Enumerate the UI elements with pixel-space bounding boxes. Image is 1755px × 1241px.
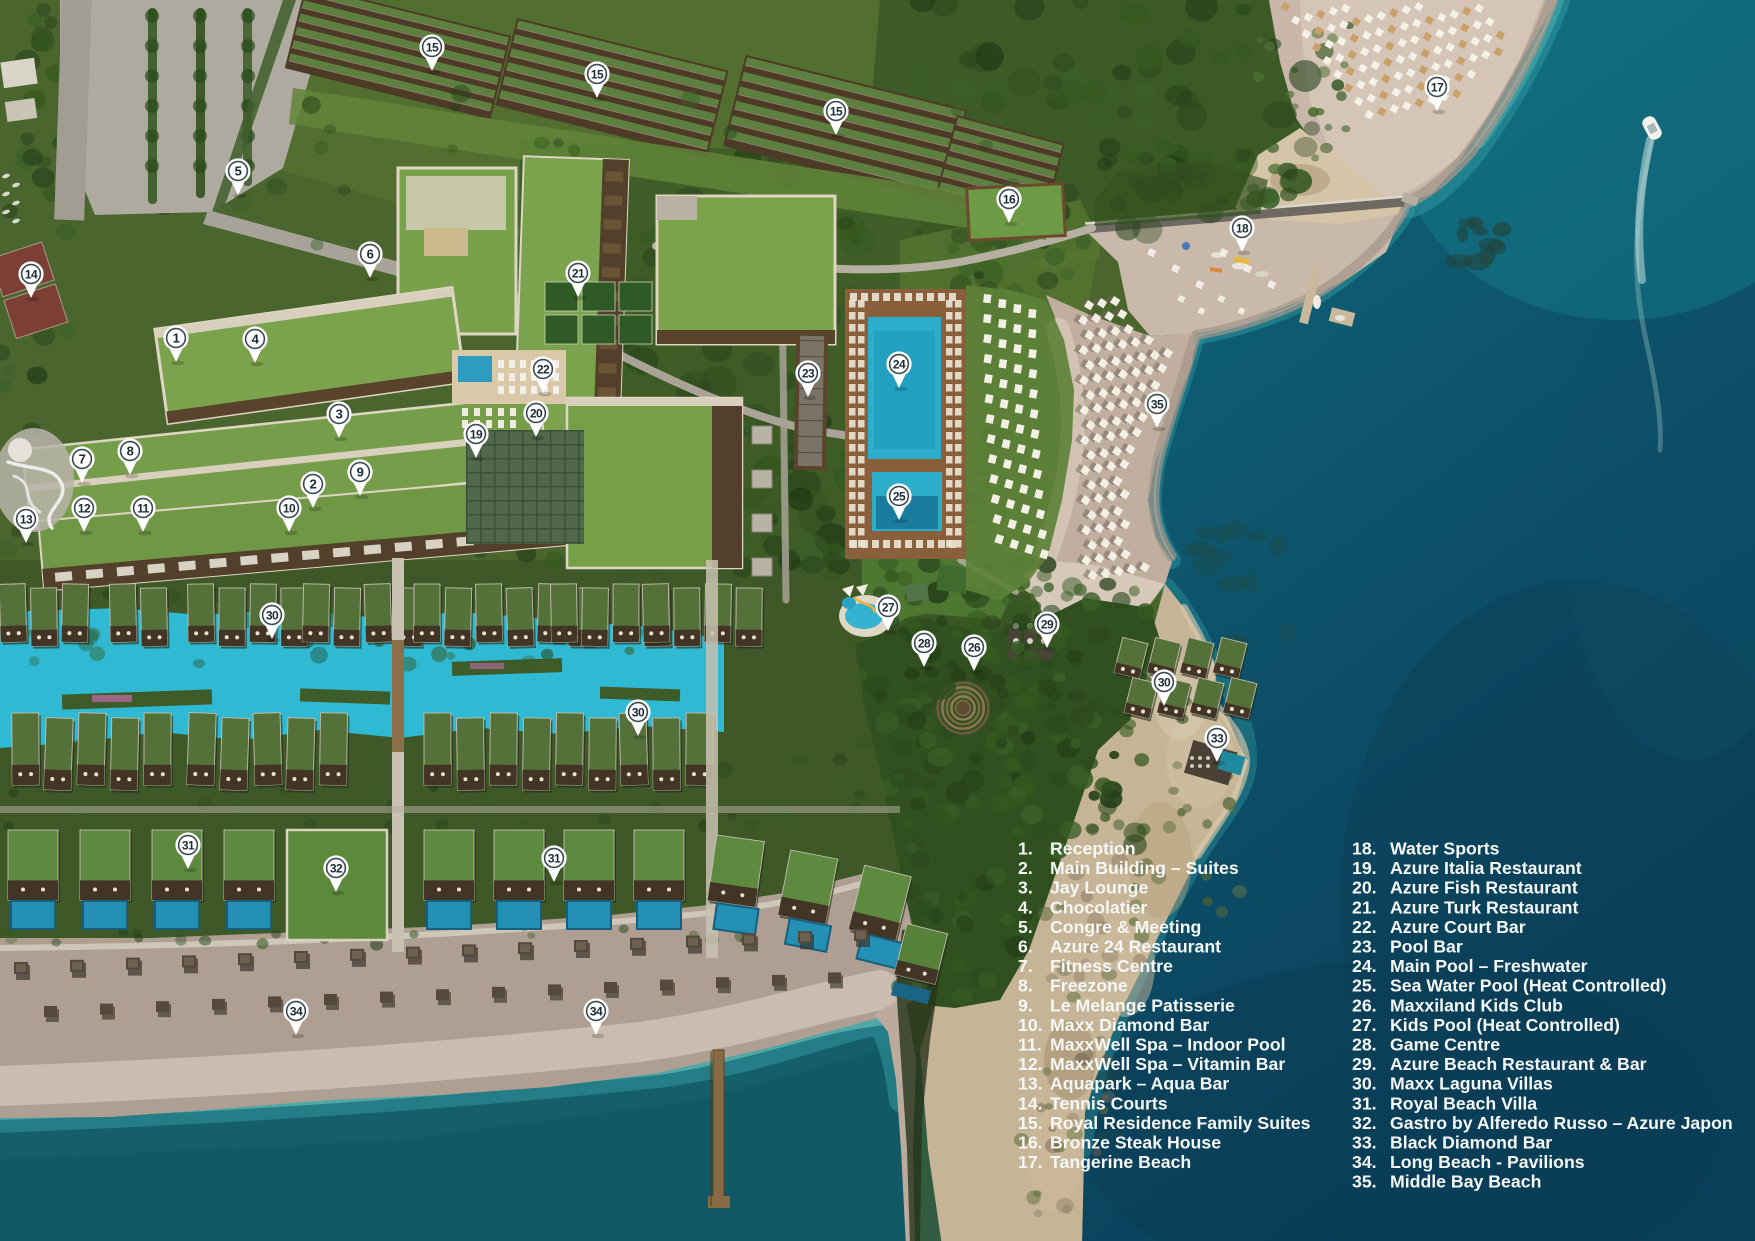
svg-text:3: 3 bbox=[336, 406, 343, 421]
svg-text:10: 10 bbox=[283, 501, 296, 515]
svg-text:30: 30 bbox=[1158, 675, 1171, 689]
svg-text:6: 6 bbox=[367, 246, 374, 261]
svg-text:15: 15 bbox=[830, 104, 843, 118]
svg-text:34: 34 bbox=[290, 1004, 303, 1018]
svg-text:8: 8 bbox=[127, 443, 134, 458]
svg-text:24: 24 bbox=[893, 357, 906, 371]
svg-text:13: 13 bbox=[20, 512, 33, 526]
svg-text:12: 12 bbox=[78, 501, 91, 515]
svg-text:35: 35 bbox=[1151, 397, 1164, 411]
svg-text:31: 31 bbox=[182, 838, 195, 852]
svg-text:21: 21 bbox=[572, 266, 585, 280]
svg-text:27: 27 bbox=[882, 600, 895, 614]
svg-text:31: 31 bbox=[548, 851, 561, 865]
svg-text:15: 15 bbox=[426, 40, 439, 54]
svg-text:17: 17 bbox=[1431, 80, 1444, 94]
svg-text:16: 16 bbox=[1003, 192, 1016, 206]
svg-text:34: 34 bbox=[590, 1004, 603, 1018]
svg-text:2: 2 bbox=[310, 476, 317, 491]
svg-text:28: 28 bbox=[918, 636, 931, 650]
svg-text:15: 15 bbox=[591, 67, 604, 81]
svg-text:23: 23 bbox=[802, 366, 815, 380]
svg-text:25: 25 bbox=[893, 489, 906, 503]
svg-text:7: 7 bbox=[79, 451, 86, 466]
svg-text:20: 20 bbox=[530, 406, 543, 420]
svg-text:9: 9 bbox=[357, 464, 364, 479]
svg-text:30: 30 bbox=[266, 608, 279, 622]
svg-text:11: 11 bbox=[137, 501, 150, 515]
svg-text:33: 33 bbox=[1211, 731, 1224, 745]
svg-text:29: 29 bbox=[1041, 617, 1054, 631]
svg-text:22: 22 bbox=[537, 362, 550, 376]
svg-text:26: 26 bbox=[968, 640, 981, 654]
svg-text:19: 19 bbox=[470, 427, 483, 441]
svg-text:14: 14 bbox=[25, 267, 38, 281]
svg-text:18: 18 bbox=[1236, 221, 1249, 235]
svg-text:5: 5 bbox=[235, 163, 242, 178]
svg-text:1: 1 bbox=[173, 330, 180, 345]
svg-text:32: 32 bbox=[330, 861, 343, 875]
svg-text:30: 30 bbox=[632, 705, 645, 719]
